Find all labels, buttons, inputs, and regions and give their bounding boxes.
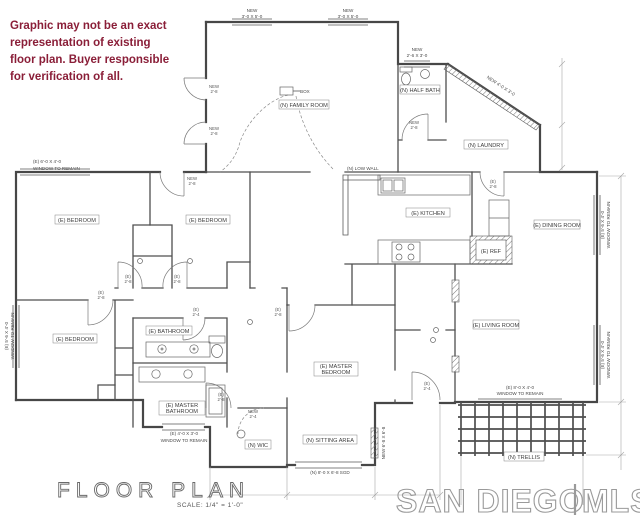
room-label-ref: (E) REF: [481, 249, 502, 255]
window-note: 3'-0 X 5'-0: [338, 14, 359, 19]
window-note-right-upper: (E) 5'-6 X 4'-0: [600, 211, 605, 239]
door-size-label: 2'-8: [489, 184, 497, 189]
window-note: NEW: [343, 8, 354, 13]
window-note-right-lower: WINDOW TO REMAIN: [606, 332, 611, 379]
plan-scale: SCALE: 1/4" = 1'-0": [177, 502, 243, 509]
door-size-label: 2'-8: [173, 279, 181, 284]
door-size-label: 2'-4: [423, 386, 431, 391]
window-note-left: (E) 5'-6 X 4'-0: [4, 322, 9, 350]
low-wall-label: (N) LOW WALL: [347, 166, 379, 171]
box-label: BOX: [300, 89, 310, 94]
room-label-laundry: (N) LAUNDRY: [468, 143, 504, 149]
door-size-label: 2'-8: [410, 125, 418, 130]
window-note: NEW: [412, 47, 423, 52]
room-label-trellis: (N) TRELLIS: [508, 455, 540, 461]
disclaimer-line: representation of existing: [10, 35, 190, 52]
room-label-bedroom1: (E) BEDROOM: [58, 218, 96, 224]
window-note-living: (E) 8'-0 X 4'-0: [506, 385, 534, 390]
floor-plan-page: (N) FAMILY ROOM (N) HALF BATH (N) LAUNDR…: [0, 0, 640, 522]
door-size-labels: NEW 2'-8 NEW 2'-8 NEW 2'-8 NEW 2'-8 (E) …: [97, 84, 497, 419]
title-block: FLOOR PLAN SCALE: 1/4" = 1'-0": [57, 479, 250, 509]
window-note-living: WINDOW TO REMAIN: [497, 391, 544, 396]
door-size-label: 2'-4: [249, 414, 257, 419]
window-note: (E) 6'-0 X 4'-0: [33, 159, 61, 164]
plan-title: FLOOR PLAN: [57, 479, 250, 502]
room-label-bathroom: (E) BATHROOM: [149, 329, 190, 335]
half-bath-fixtures: [400, 67, 430, 85]
door-size-label: 2'-8: [274, 312, 282, 317]
window-note-bottom: WINDOW TO REMAIN: [161, 438, 208, 443]
disclaimer-line: for verification of all.: [10, 69, 190, 86]
room-label-bedroom3: (E) BEDROOM: [56, 337, 94, 343]
door-size-label: 2'-8: [188, 181, 196, 186]
door-size-label: 2'-8: [217, 397, 225, 402]
room-label-family-room: (N) FAMILY ROOM: [280, 103, 328, 109]
room-label-sitting-area: (N) SITTING AREA: [306, 438, 354, 444]
window-note-right-upper: WINDOW TO REMAIN: [606, 202, 611, 249]
door-size-label: 2'-8: [124, 279, 132, 284]
watermark-suffix: MLS: [582, 483, 640, 519]
room-label-kitchen: (E) KITCHEN: [411, 211, 445, 217]
window-note: NEW: [247, 8, 258, 13]
door-size-label: 2'-4: [192, 312, 200, 317]
window-note: 2'-6 X 3'-0: [407, 53, 428, 58]
room-label-dining: (E) DINING ROOM: [533, 223, 581, 229]
disclaimer-text: Graphic may not be an exact representati…: [10, 18, 190, 86]
door-size-label: 2'-8: [210, 131, 218, 136]
trellis-grid: [458, 402, 586, 456]
door-arcs: [88, 78, 504, 438]
watermark-brand: SAN DIEGO: [396, 483, 585, 519]
room-label-master-bath-2: BATHROOM: [166, 409, 198, 415]
watermark: SAN DIEGO MLS: [396, 483, 640, 519]
door-size-label: 2'-8: [97, 295, 105, 300]
room-label-wic: (N) WIC: [248, 443, 268, 449]
window-note-left: WINDOW TO REMAIN: [10, 313, 15, 360]
room-label-bedroom2: (E) BEDROOM: [189, 218, 227, 224]
sliding-door-note: (N) 8'-0 X 6'-8 SGD: [310, 470, 350, 475]
window-note-bottom: (E) 4'-0 X 3'-0: [170, 431, 198, 436]
window-note-right-lower: (E) 5'-6 X 4'-0: [600, 341, 605, 369]
door-size-label: 2'-8: [210, 89, 218, 94]
disclaimer-line: Graphic may not be an exact: [10, 18, 190, 35]
room-label-master-bed-2: BEDROOM: [322, 370, 351, 376]
window-note: 3'-0 X 5'-0: [242, 14, 263, 19]
disclaimer-line: floor plan. Buyer responsible: [10, 52, 190, 69]
room-label-half-bath: (N) HALF BATH: [400, 88, 440, 94]
window-note: WINDOW TO REMAIN: [33, 166, 80, 171]
room-label-living: (E) LIVING ROOM: [473, 323, 520, 329]
window-note-sitting-side: NEW 6'-8 X 6'-8: [381, 426, 386, 459]
